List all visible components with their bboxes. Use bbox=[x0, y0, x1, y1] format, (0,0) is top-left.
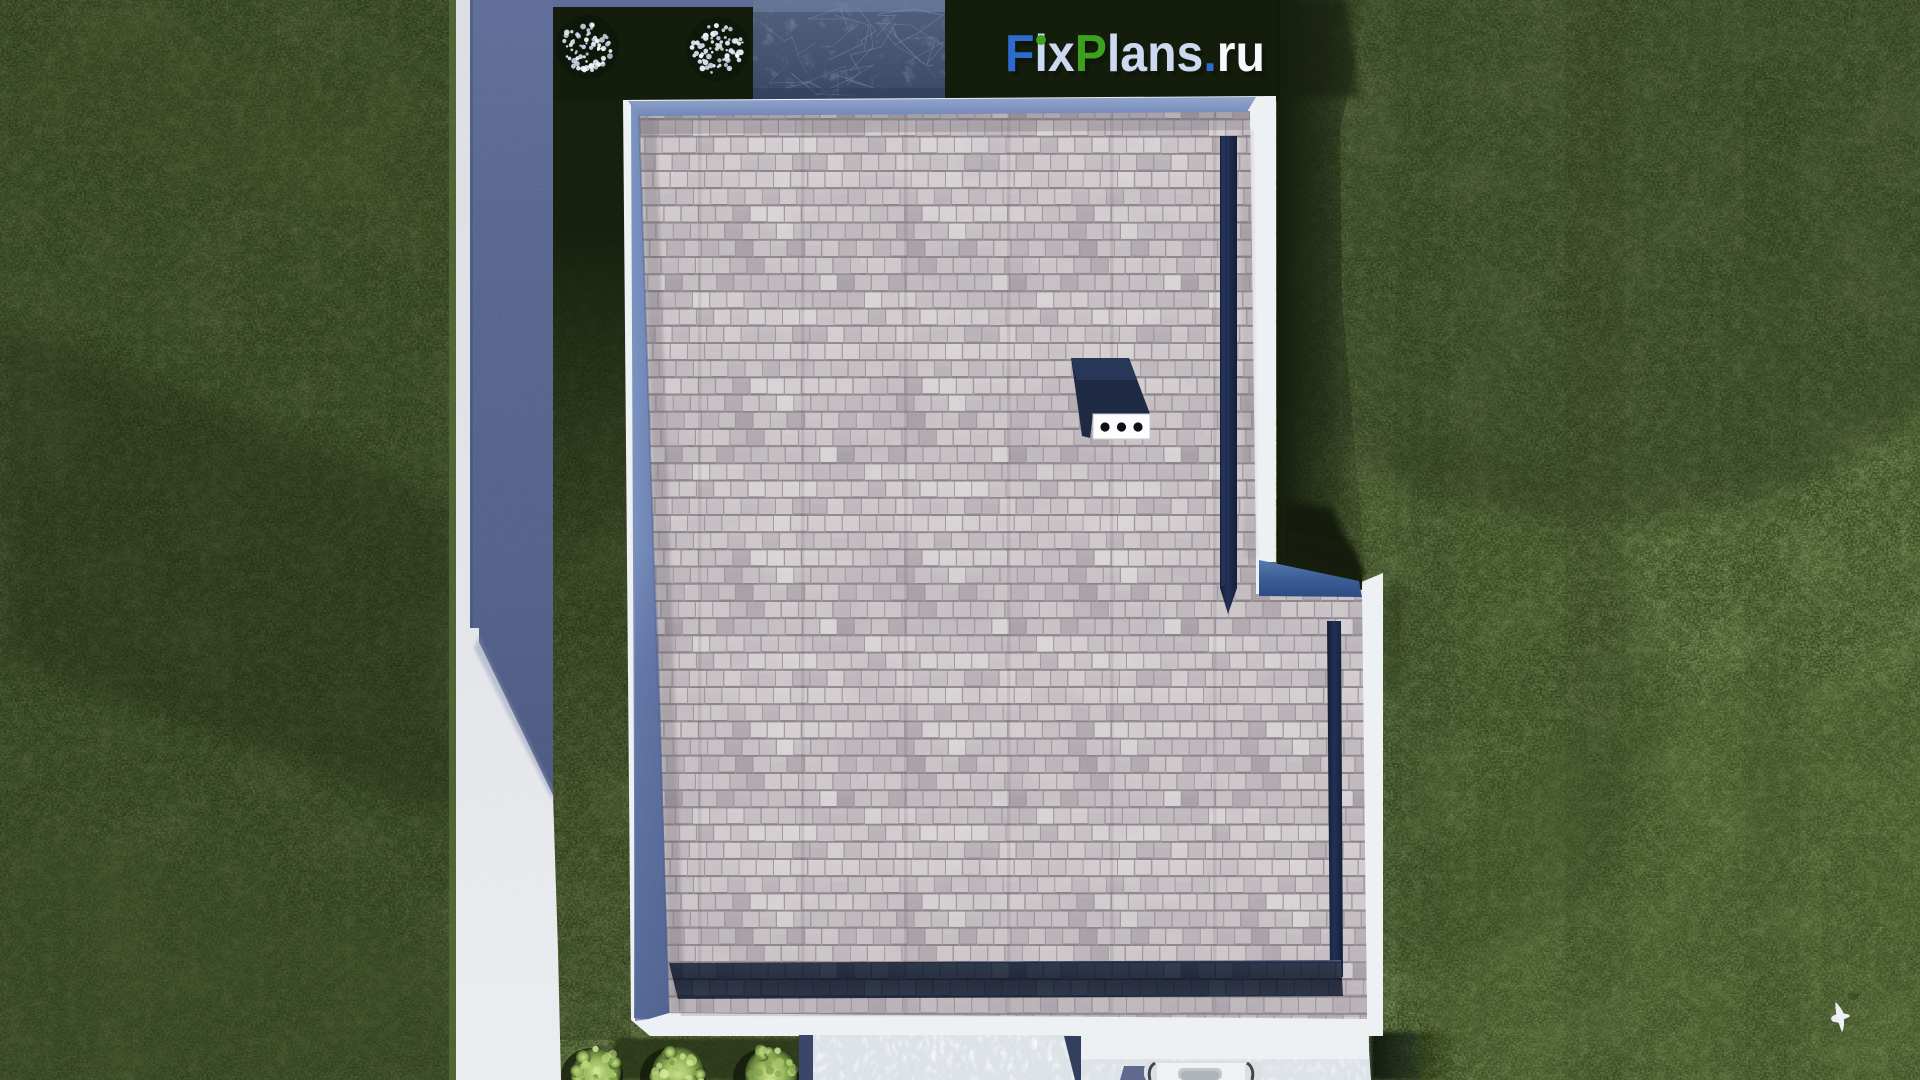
svg-text:FixPlans.ru: FixPlans.ru bbox=[1005, 25, 1265, 83]
